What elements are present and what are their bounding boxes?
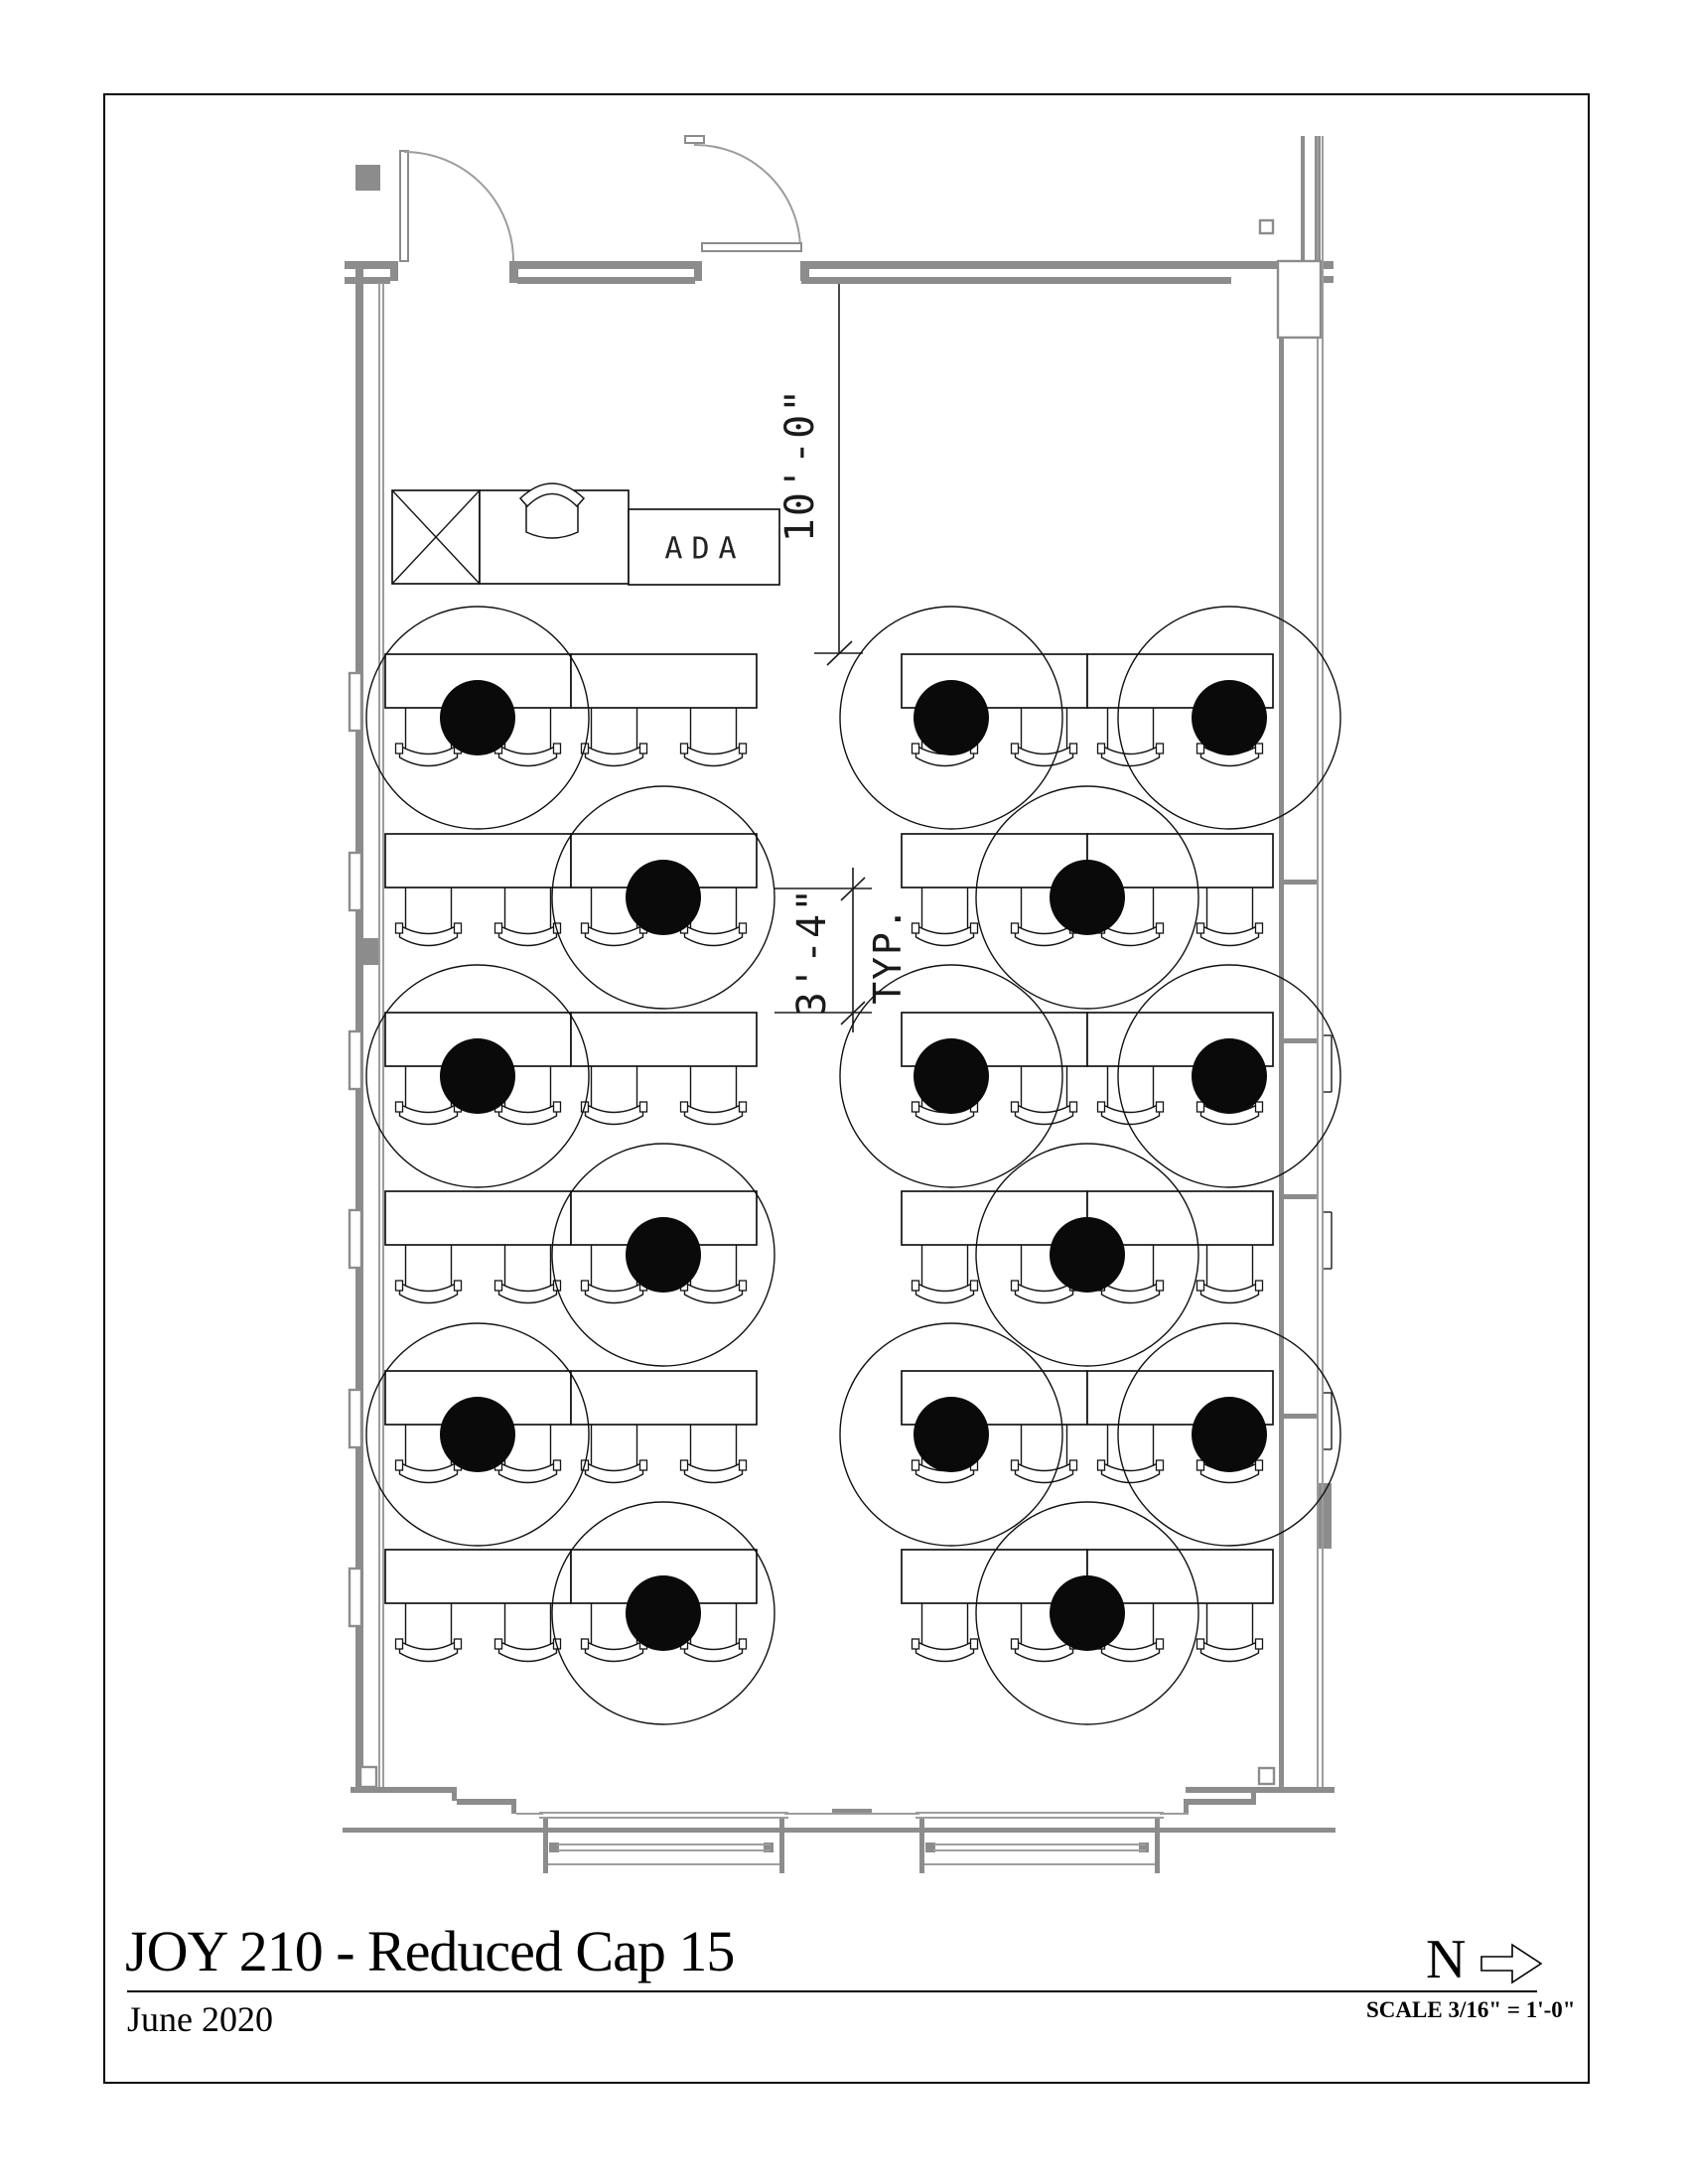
occupied-seat-marker: [1192, 680, 1267, 755]
chair-icon: [1012, 1102, 1019, 1112]
door-swing-arc: [404, 152, 513, 261]
chair-icon: [1197, 744, 1204, 753]
chair-icon: [1201, 1283, 1259, 1303]
chair-icon: [1256, 744, 1263, 753]
occupied-seat-marker: [914, 1038, 989, 1114]
chair-icon: [681, 744, 688, 753]
chair-icon: [740, 1460, 747, 1470]
wall-segment: [511, 1805, 516, 1814]
chair-icon: [582, 1281, 589, 1291]
chair-icon: [685, 1462, 743, 1483]
student-table: [385, 1191, 571, 1245]
chair-icon: [1102, 1283, 1160, 1303]
wall-segment: [919, 1819, 924, 1873]
wall-fixture: [350, 853, 361, 910]
chair-icon: [1098, 1102, 1105, 1112]
chair-icon: [455, 923, 462, 933]
title-block: [104, 94, 1589, 2083]
chair-icon: [1016, 1283, 1073, 1303]
wall-segment: [345, 277, 390, 284]
chair-icon: [1157, 1102, 1164, 1112]
chair-icon: [740, 1102, 747, 1112]
wall-fixture: [350, 673, 361, 731]
chair-icon: [1016, 925, 1073, 946]
chair-icon: [554, 1460, 561, 1470]
chair-icon: [1070, 744, 1077, 753]
chair-icon: [495, 1639, 502, 1649]
wall-segment: [1189, 1799, 1256, 1805]
door-swing-arc: [694, 145, 800, 248]
chair-icon: [971, 923, 978, 933]
chair-icon: [1012, 744, 1019, 753]
occupied-seat-marker: [1192, 1397, 1267, 1472]
wall-segment: [801, 261, 1278, 269]
chair-icon: [396, 744, 403, 753]
chair-icon: [916, 1283, 974, 1303]
chair-icon: [582, 1639, 589, 1649]
chair-icon: [586, 1462, 643, 1483]
chair-icon: [1098, 1460, 1105, 1470]
chair-icon: [1157, 923, 1164, 933]
chair-icon: [1256, 923, 1263, 933]
wall-segment: [355, 265, 363, 1793]
chair-icon: [685, 746, 743, 766]
chair-icon: [916, 1641, 974, 1662]
chair-icon: [1016, 746, 1073, 766]
wall-segment: [457, 1799, 516, 1805]
chair-icon: [1070, 1102, 1077, 1112]
wall-fixture: [1259, 1768, 1274, 1784]
chair-icon: [1197, 1639, 1204, 1649]
drawing-date: June 2020: [127, 1998, 273, 2040]
chair-icon: [740, 923, 747, 933]
occupied-seat-marker: [914, 680, 989, 755]
wall-segment: [517, 277, 695, 284]
chair-icon: [586, 746, 643, 766]
chair-icon: [554, 744, 561, 753]
chair-icon: [916, 925, 974, 946]
doors: [400, 136, 801, 261]
chair-icon: [1102, 925, 1160, 946]
occupied-seat-marker: [1050, 1575, 1125, 1651]
drawing-sheet: JOY 210 - Reduced Cap 15 June 2020 N SCA…: [0, 0, 1688, 2184]
chair-icon: [400, 746, 458, 766]
dimension-row-spacing: 3'-4": [789, 887, 835, 1016]
student-table: [571, 1371, 757, 1425]
chair-icon: [685, 1283, 743, 1303]
chair-icon: [740, 1281, 747, 1291]
chair-icon: [1256, 1639, 1263, 1649]
chair-icon: [495, 1281, 502, 1291]
wall-segment: [543, 1819, 548, 1873]
wall-segment: [1284, 1194, 1318, 1199]
chair-icon: [1102, 746, 1160, 766]
chair-icon: [400, 1104, 458, 1125]
chair-icon: [1102, 1104, 1160, 1125]
wall-segment: [1301, 136, 1305, 261]
chair-icon: [1256, 1281, 1263, 1291]
floor-plan: [0, 0, 1688, 2184]
chair-icon: [1197, 1460, 1204, 1470]
chair-icon: [1016, 1104, 1073, 1125]
chair-icon: [913, 1102, 919, 1112]
chair-icon: [913, 923, 919, 933]
door-leaf: [702, 243, 801, 251]
chair-icon: [400, 1462, 458, 1483]
occupied-seat-marker: [626, 860, 701, 935]
chair-icon: [685, 1641, 743, 1662]
occupied-seat-marker: [440, 1397, 515, 1472]
wall-fixture: [1260, 220, 1273, 233]
wall-fixture: [360, 1767, 376, 1787]
wall-fixture: [350, 1210, 361, 1268]
chair-icon: [396, 1281, 403, 1291]
chair-icon: [396, 923, 403, 933]
student-table: [385, 1550, 571, 1603]
chair-icon: [913, 1460, 919, 1470]
chair-icon: [740, 744, 747, 753]
chair-icon: [1012, 1281, 1019, 1291]
wall-segment: [779, 1819, 784, 1873]
chair-icon: [1256, 1460, 1263, 1470]
wall-fixture: [1278, 261, 1321, 338]
chair-icon: [913, 1639, 919, 1649]
occupied-seat-marker: [1192, 1038, 1267, 1114]
student-table: [571, 1013, 757, 1066]
occupied-seat-marker: [626, 1575, 701, 1651]
chair-icon: [499, 1462, 557, 1483]
drawing-title: JOY 210 - Reduced Cap 15: [125, 1918, 734, 1984]
wall-segment: [694, 261, 702, 281]
wall-segment: [1184, 1799, 1189, 1813]
chair-icon: [1012, 1460, 1019, 1470]
chair-icon: [499, 1104, 557, 1125]
chair-icon: [586, 1104, 643, 1125]
wall-segment: [355, 938, 380, 965]
occupied-seat-marker: [1050, 860, 1125, 935]
chair-icon: [499, 1641, 557, 1662]
chair-icon: [1256, 1102, 1263, 1112]
chair-icon: [499, 1283, 557, 1303]
chair-icon: [681, 1460, 688, 1470]
wall-segment: [355, 165, 380, 191]
chair-icon: [1197, 1281, 1204, 1291]
chair-icon: [1012, 923, 1019, 933]
wall-segment: [509, 261, 518, 283]
wall-segment: [1155, 1819, 1160, 1873]
chair-icon: [685, 1104, 743, 1125]
wall-segment: [1251, 1787, 1256, 1799]
chair-icon: [1016, 1462, 1073, 1483]
chair-icon: [455, 1281, 462, 1291]
chair-icon: [455, 1639, 462, 1649]
chair-icon: [1098, 744, 1105, 753]
chair-icon: [499, 746, 557, 766]
door-leaf: [685, 136, 704, 143]
chair-icon: [586, 1641, 643, 1662]
chair-icon: [740, 1639, 747, 1649]
wall-segment: [343, 1828, 1336, 1833]
wall-segment: [801, 277, 1231, 284]
chair-icon: [971, 1639, 978, 1649]
chair-icon: [400, 1641, 458, 1662]
chair-icon: [495, 923, 502, 933]
wall-segment: [1284, 1414, 1318, 1419]
furniture: [385, 483, 1273, 1662]
chair-icon: [685, 925, 743, 946]
student-table: [571, 654, 757, 708]
chair-icon: [586, 925, 643, 946]
chair-icon: [1157, 1639, 1164, 1649]
wall-segment: [1284, 1038, 1318, 1043]
wall-segment: [800, 261, 809, 281]
chair-icon: [400, 925, 458, 946]
chair-icon: [1012, 1639, 1019, 1649]
dimension-front-clearance: 10'-0": [777, 387, 823, 543]
chair-icon: [1197, 1102, 1204, 1112]
chair-icon: [400, 1283, 458, 1303]
chair-icon: [913, 744, 919, 753]
chair-icon: [1157, 744, 1164, 753]
occupied-seat-marker: [914, 1397, 989, 1472]
occupied-seat-marker: [440, 680, 515, 755]
door-leaf: [400, 151, 408, 261]
chair-icon: [1102, 1462, 1160, 1483]
north-arrow-icon: [1481, 1945, 1541, 1982]
chair-icon: [1157, 1460, 1164, 1470]
wall-segment: [517, 261, 695, 269]
chair-icon: [1016, 1641, 1073, 1662]
wall-segment: [1279, 265, 1284, 1793]
chair-icon: [1157, 1281, 1164, 1291]
occupied-seat-marker: [1050, 1217, 1125, 1293]
chair-icon: [1201, 925, 1259, 946]
chair-icon: [640, 1460, 647, 1470]
wall-segment: [345, 261, 390, 269]
chair-icon: [681, 1102, 688, 1112]
wall-fixture: [350, 1390, 361, 1447]
chair-icon: [396, 1460, 403, 1470]
wall-fixture: [350, 1031, 361, 1089]
chair-icon: [1197, 923, 1204, 933]
chair-icon: [1070, 1460, 1077, 1470]
chair-icon: [1102, 1641, 1160, 1662]
chair-icon: [554, 1102, 561, 1112]
dimension-typ-qualifier: TYP.: [866, 905, 910, 1005]
chair-icon: [640, 744, 647, 753]
wall-segment: [390, 261, 398, 281]
wall-fixture: [350, 1569, 361, 1626]
chair-icon: [582, 923, 589, 933]
instructor-chair-icon: [526, 496, 578, 538]
chair-icon: [396, 1639, 403, 1649]
occupied-seat-marker: [440, 1038, 515, 1114]
chair-icon: [586, 1283, 643, 1303]
wall-segment: [452, 1793, 457, 1801]
chair-icon: [396, 1102, 403, 1112]
north-label: N: [1426, 1928, 1466, 1991]
scale-label: SCALE 3/16" = 1'-0": [1366, 1997, 1576, 2023]
chair-icon: [499, 925, 557, 946]
chair-icon: [1201, 1641, 1259, 1662]
chair-icon: [913, 1281, 919, 1291]
chair-icon: [971, 1281, 978, 1291]
student-table: [385, 834, 571, 887]
ada-table-label: ADA: [664, 532, 745, 567]
sheet-border: [104, 94, 1589, 2083]
wall-segment: [1284, 880, 1318, 885]
wall-segment: [1186, 1787, 1335, 1793]
occupied-seat-marker: [626, 1217, 701, 1293]
chair-icon: [640, 1102, 647, 1112]
